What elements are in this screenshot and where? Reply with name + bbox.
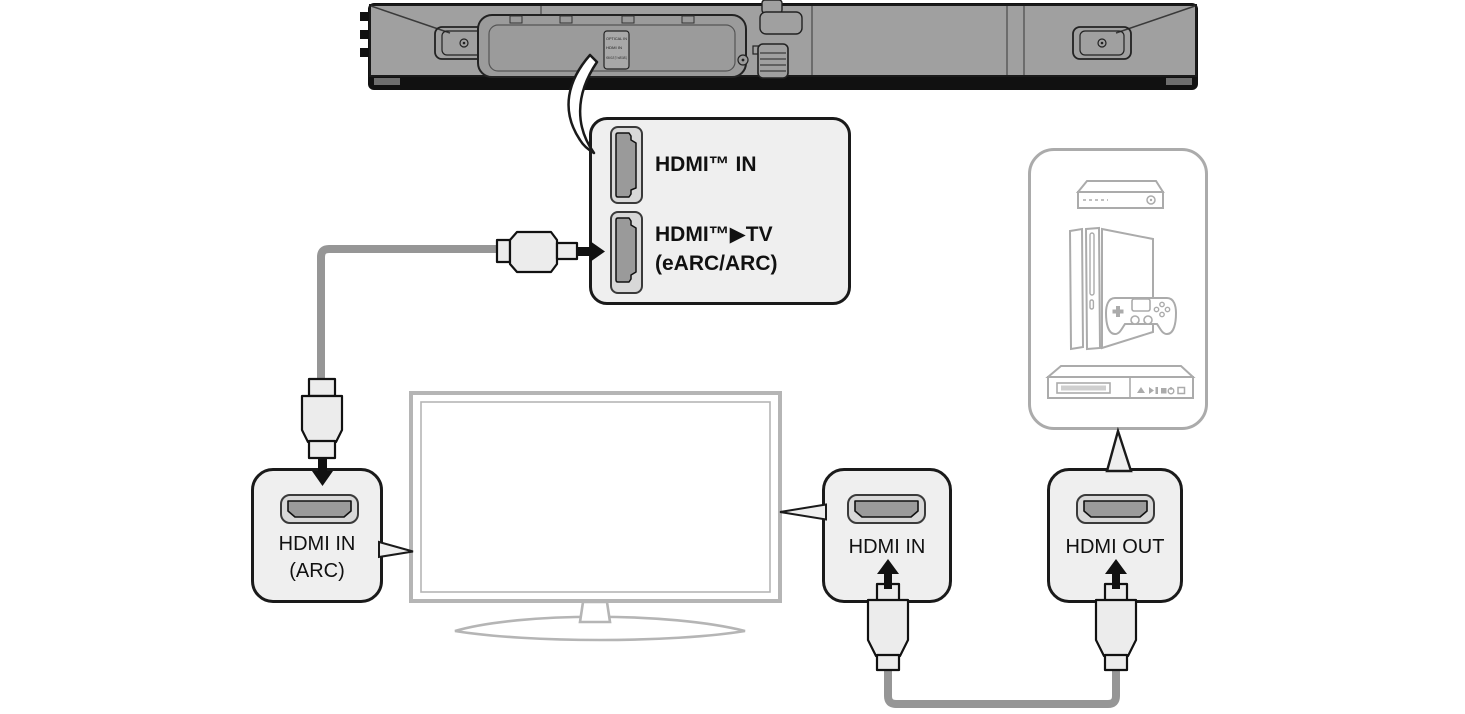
wall-mount-right xyxy=(1073,27,1131,59)
wall-mount-left xyxy=(435,27,493,59)
corner-facet-line xyxy=(1116,6,1195,33)
hdmi-in-panel-pointer xyxy=(780,505,826,520)
soundbar-ports-recess: OPTICAL IN HDMI IN HDMI OUT (TV eARC/ARC… xyxy=(478,15,748,77)
soundbar-left-tab xyxy=(360,30,369,39)
arc-panel-pointer xyxy=(379,542,413,557)
soundbar-left-tab xyxy=(360,48,369,57)
hdmi-cable-device-to-tv xyxy=(888,668,1116,704)
soundbar-rear-view: OPTICAL IN HDMI IN HDMI OUT (TV eARC/ARC… xyxy=(360,0,1198,90)
soundbar-left-tab xyxy=(360,12,369,21)
tv-stand-base xyxy=(455,617,745,640)
screw-hole-icon xyxy=(1098,39,1106,47)
tv-stand-neck xyxy=(580,602,610,622)
soundbar-foot xyxy=(374,78,400,85)
tv-arc-label-line2: (ARC) xyxy=(254,558,380,585)
plate-label-optical: OPTICAL IN xyxy=(606,37,628,41)
hdmi-cable-soundbar-to-tv xyxy=(321,249,498,384)
hdmi-in-port-label: HDMI™ IN xyxy=(655,153,757,177)
hdmi-plug-right-icon xyxy=(497,232,577,272)
tv-hdmi-in-label: HDMI IN xyxy=(825,534,949,561)
screw-hole-icon xyxy=(460,39,468,47)
hdmi-plug-down-icon xyxy=(302,379,342,458)
hdmi-port-icons xyxy=(281,495,1154,523)
screw-icon xyxy=(738,55,748,65)
hdmi-tv-label-line1: HDMI™▶TV xyxy=(655,220,778,249)
diagram-overlay: OPTICAL IN HDMI IN HDMI OUT (TV eARC/ARC… xyxy=(0,0,1465,714)
hdmi-tv-earc-port-label: HDMI™▶TV (eARC/ARC) xyxy=(655,220,778,278)
cable-clip xyxy=(622,16,634,23)
device-hdmi-out-panel: HDMI OUT xyxy=(1047,468,1183,603)
port-label-plate: OPTICAL IN HDMI IN HDMI OUT (TV eARC/ARC… xyxy=(604,31,629,69)
plate-label-hdmi-out: HDMI OUT (TV eARC/ARC) xyxy=(606,56,627,60)
tv-arc-port-label: HDMI IN (ARC) xyxy=(254,531,380,585)
soundbar-body xyxy=(370,5,1196,76)
device-hdmi-out-label: HDMI OUT xyxy=(1050,534,1180,561)
tv-screen xyxy=(421,402,770,592)
tv-frame xyxy=(411,393,780,601)
hdmi-out-panel-pointer xyxy=(1107,431,1131,471)
hdmi-tv-label-line2: (eARC/ARC) xyxy=(655,249,778,278)
soundbar-base xyxy=(368,3,1198,90)
source-devices-panel xyxy=(1028,148,1208,430)
cable-clip xyxy=(682,16,694,23)
plate-label-hdmi-in: HDMI IN xyxy=(606,46,623,50)
tv-arc-label-line1: HDMI IN xyxy=(254,531,380,558)
cable-clip xyxy=(510,16,522,23)
connection-diagram: HDMI™ IN HDMI™▶TV (eARC/ARC) HDMI IN (AR… xyxy=(0,0,1465,714)
corner-facet-line xyxy=(371,6,450,33)
tv-outline xyxy=(411,393,780,640)
power-cord-holder xyxy=(753,0,802,78)
tv-hdmi-in-panel: HDMI IN xyxy=(822,468,952,603)
tv-hdmi-arc-panel: HDMI IN (ARC) xyxy=(251,468,383,603)
soundbar-ports-callout-panel: HDMI™ IN HDMI™▶TV (eARC/ARC) xyxy=(589,117,851,305)
soundbar-foot xyxy=(1166,78,1192,85)
cable-clip xyxy=(560,16,572,23)
